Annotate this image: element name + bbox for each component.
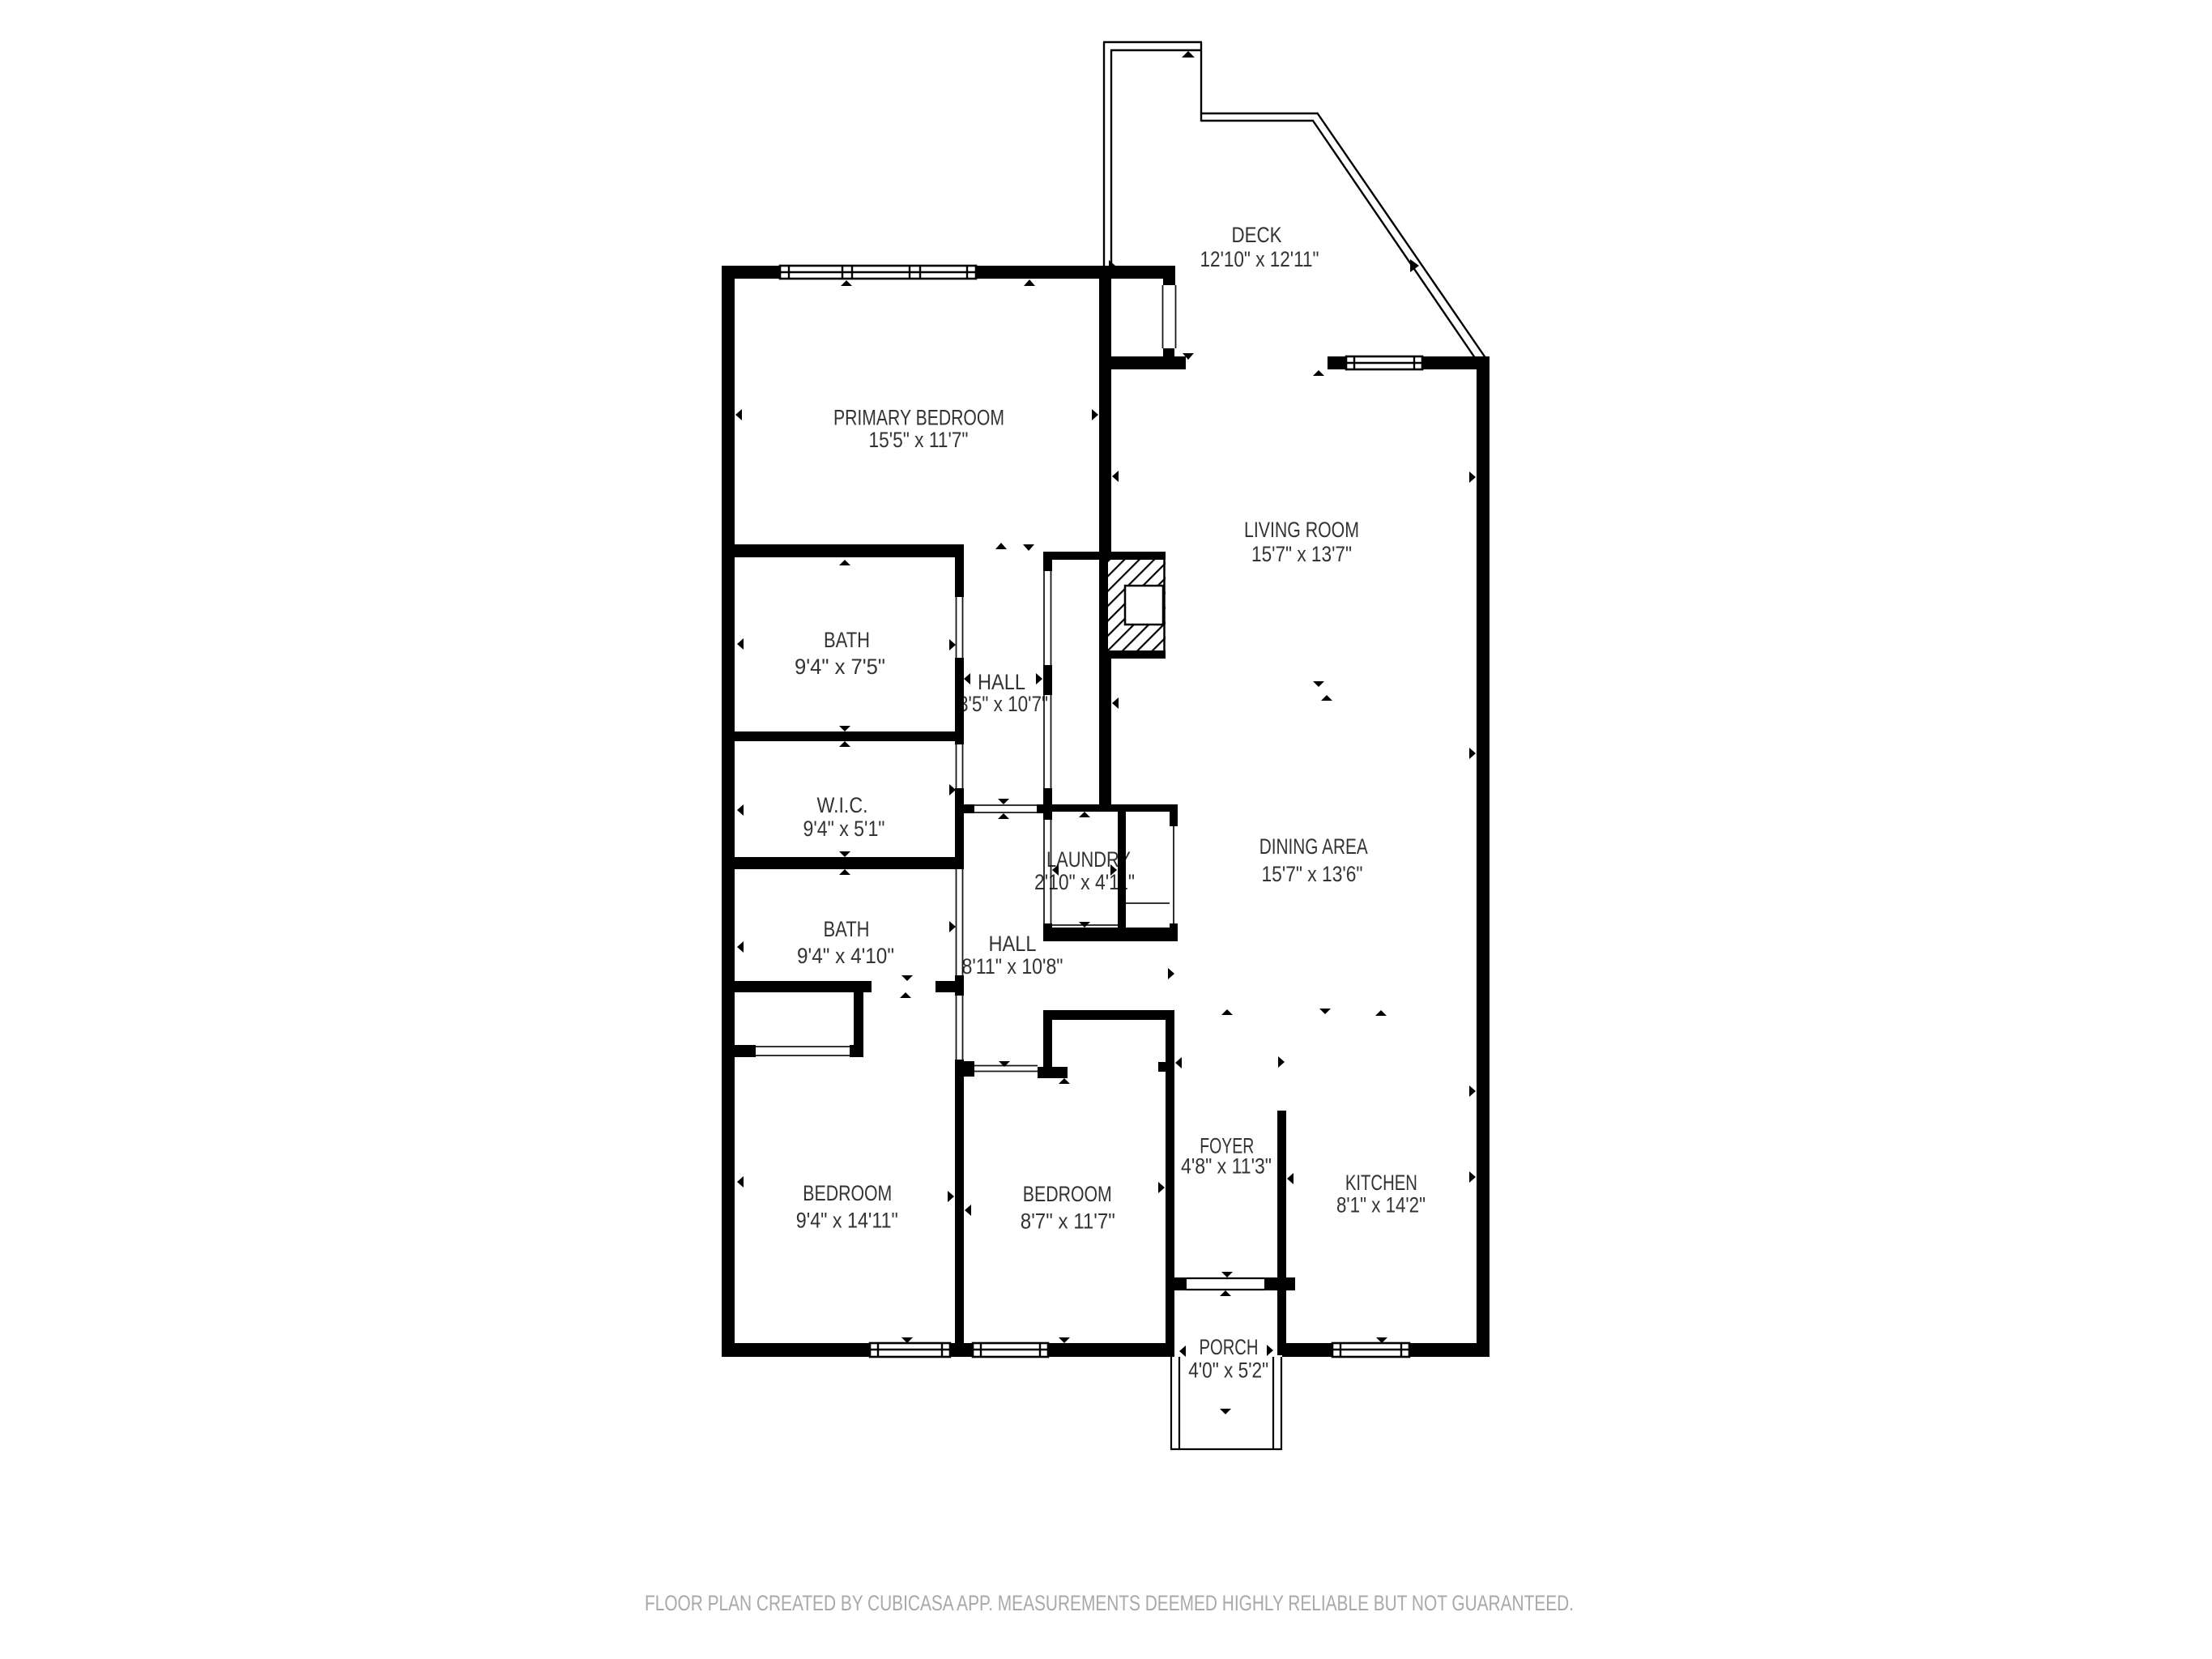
svg-text:9'4" x 14'11": 9'4" x 14'11" (796, 1208, 898, 1232)
svg-text:BATH: BATH (824, 628, 870, 652)
svg-text:BEDROOM: BEDROOM (1023, 1182, 1112, 1206)
svg-text:FLOOR PLAN CREATED BY CUBICASA: FLOOR PLAN CREATED BY CUBICASA APP. MEAS… (645, 1591, 1574, 1615)
svg-text:9'4" x 7'5": 9'4" x 7'5" (795, 655, 885, 679)
svg-text:8'1" x 14'2": 8'1" x 14'2" (1336, 1193, 1426, 1218)
svg-text:8'7" x 11'7": 8'7" x 11'7" (1021, 1209, 1115, 1233)
svg-text:9'4" x 4'10": 9'4" x 4'10" (797, 944, 894, 968)
svg-text:4'8" x 11'3": 4'8" x 11'3" (1181, 1154, 1272, 1179)
svg-text:15'5" x 11'7": 15'5" x 11'7" (869, 428, 969, 452)
svg-text:9'4" x 5'1": 9'4" x 5'1" (803, 817, 885, 841)
svg-text:BEDROOM: BEDROOM (803, 1181, 892, 1205)
svg-text:15'7" x 13'7": 15'7" x 13'7" (1251, 542, 1352, 566)
svg-text:HALL: HALL (989, 932, 1037, 956)
svg-text:W.I.C.: W.I.C. (817, 793, 868, 817)
svg-text:HALL: HALL (978, 670, 1025, 694)
svg-text:12'10" x 12'11": 12'10" x 12'11" (1200, 247, 1319, 271)
svg-text:PRIMARY BEDROOM: PRIMARY BEDROOM (833, 406, 1004, 430)
svg-text:KITCHEN: KITCHEN (1345, 1171, 1417, 1195)
svg-text:3'5" x 10'7": 3'5" x 10'7" (958, 692, 1048, 716)
svg-text:LIVING ROOM: LIVING ROOM (1244, 518, 1359, 542)
svg-text:4'0" x 5'2": 4'0" x 5'2" (1188, 1358, 1268, 1382)
svg-text:15'7" x 13'6": 15'7" x 13'6" (1262, 862, 1363, 886)
svg-text:PORCH: PORCH (1200, 1335, 1259, 1359)
svg-text:DECK: DECK (1232, 223, 1282, 247)
svg-text:BATH: BATH (824, 917, 870, 941)
svg-text:DINING AREA: DINING AREA (1259, 834, 1368, 859)
svg-text:8'11" x 10'8": 8'11" x 10'8" (962, 954, 1063, 979)
